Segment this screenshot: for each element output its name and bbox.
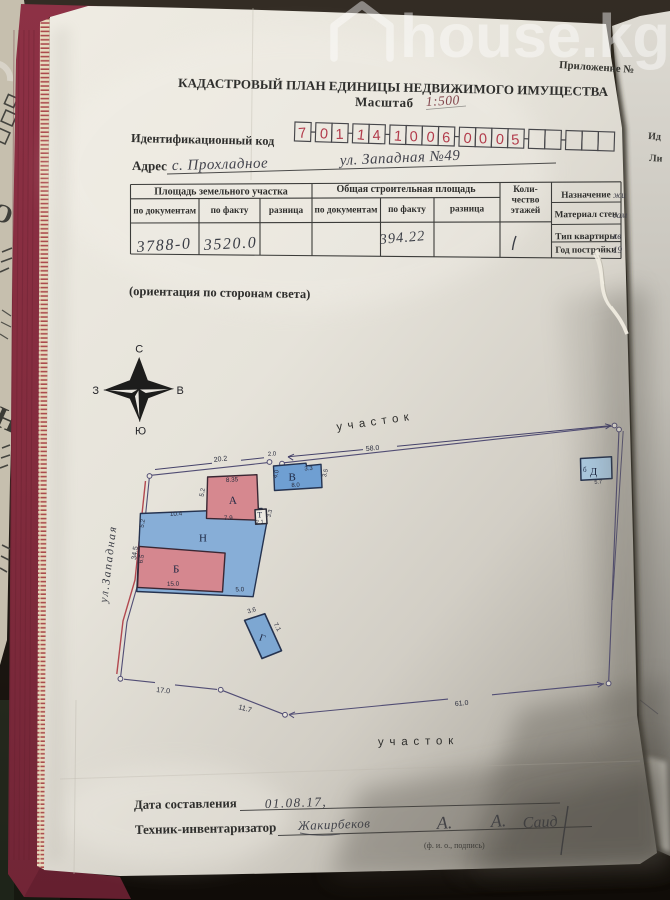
svg-text:Ли: Ли [649, 153, 663, 165]
svg-text:б: б [583, 466, 587, 474]
svg-text:2.0: 2.0 [268, 451, 277, 458]
svg-text:участок: участок [378, 735, 459, 748]
svg-text:7: 7 [298, 125, 307, 142]
svg-text:разница: разница [269, 206, 304, 216]
svg-text:01.08.17,: 01.08.17, [265, 794, 328, 811]
svg-text:жи: жи [613, 190, 626, 200]
svg-text:кв: кв [613, 231, 621, 241]
svg-text:6: 6 [442, 130, 450, 146]
svg-text:10.4: 10.4 [170, 510, 183, 518]
svg-text:3.3: 3.3 [304, 466, 313, 473]
svg-text:разница: разница [450, 205, 485, 215]
svg-text:58.0: 58.0 [366, 445, 380, 453]
svg-text:Коли-: Коли- [513, 185, 537, 195]
svg-text:8.35: 8.35 [226, 476, 239, 484]
svg-text:Т: Т [257, 511, 262, 520]
svg-text:0: 0 [409, 129, 418, 145]
svg-text:этажей: этажей [511, 205, 541, 216]
svg-text:Масштаб: Масштаб [355, 94, 414, 110]
svg-text:Д: Д [590, 467, 597, 478]
svg-text:с. Прохладное: с. Прохладное [172, 155, 269, 174]
svg-text:по факту: по факту [388, 204, 426, 215]
svg-text:Техник-инвентаризатор: Техник-инвентаризатор [135, 820, 277, 837]
svg-text:Назначение: Назначение [561, 190, 611, 200]
svg-text:61.0: 61.0 [455, 700, 469, 708]
svg-text:17.0: 17.0 [156, 685, 171, 695]
svg-text:0: 0 [479, 131, 488, 147]
svg-text:0: 0 [319, 126, 329, 143]
svg-text:1: 1 [335, 127, 343, 143]
svg-text:1:500: 1:500 [425, 92, 460, 109]
svg-text:4: 4 [372, 128, 381, 144]
svg-text:Общая строительная площадь: Общая строительная площадь [336, 184, 476, 195]
svg-text:Тип квартиры: Тип квартиры [555, 232, 617, 243]
svg-text:Н: Н [199, 533, 207, 545]
svg-text:2.1: 2.1 [256, 520, 264, 526]
svg-text:0: 0 [463, 131, 473, 148]
svg-text:5: 5 [511, 132, 520, 149]
svg-text:Площадь земельного участка: Площадь земельного участка [154, 187, 287, 198]
svg-text:house.kg: house.kg [400, 2, 670, 71]
svg-text:Адрес: Адрес [132, 158, 167, 173]
svg-text:С: С [135, 344, 143, 356]
svg-text:5.7: 5.7 [594, 479, 602, 486]
svg-text:Материал стен: Материал стен [555, 210, 619, 221]
svg-text:Ид: Ид [648, 131, 661, 143]
svg-text:З: З [92, 385, 99, 397]
svg-text:0: 0 [495, 132, 504, 149]
svg-text:по документам: по документам [133, 207, 197, 217]
svg-text:15.0: 15.0 [167, 581, 180, 588]
svg-text:по факту: по факту [211, 205, 249, 216]
svg-text:7.9: 7.9 [224, 515, 233, 522]
svg-text:Дата составления: Дата составления [134, 796, 237, 812]
svg-text:8.0: 8.0 [291, 483, 300, 489]
svg-text:Год постройки: Год постройки [555, 244, 617, 256]
svg-text:сам: сам [613, 210, 627, 220]
svg-text:В: В [177, 385, 184, 397]
svg-text:3520.0: 3520.0 [202, 234, 257, 254]
svg-text:В: В [289, 472, 296, 484]
svg-text:по документам: по документам [315, 205, 379, 215]
svg-text:5.0: 5.0 [235, 586, 244, 593]
svg-text:А: А [229, 495, 237, 507]
svg-text:чество: чество [512, 195, 540, 205]
svg-text:1: 1 [393, 128, 402, 145]
svg-text:Б: Б [173, 564, 179, 576]
svg-text:Ю: Ю [135, 426, 146, 438]
svg-text:19: 19 [613, 245, 623, 255]
